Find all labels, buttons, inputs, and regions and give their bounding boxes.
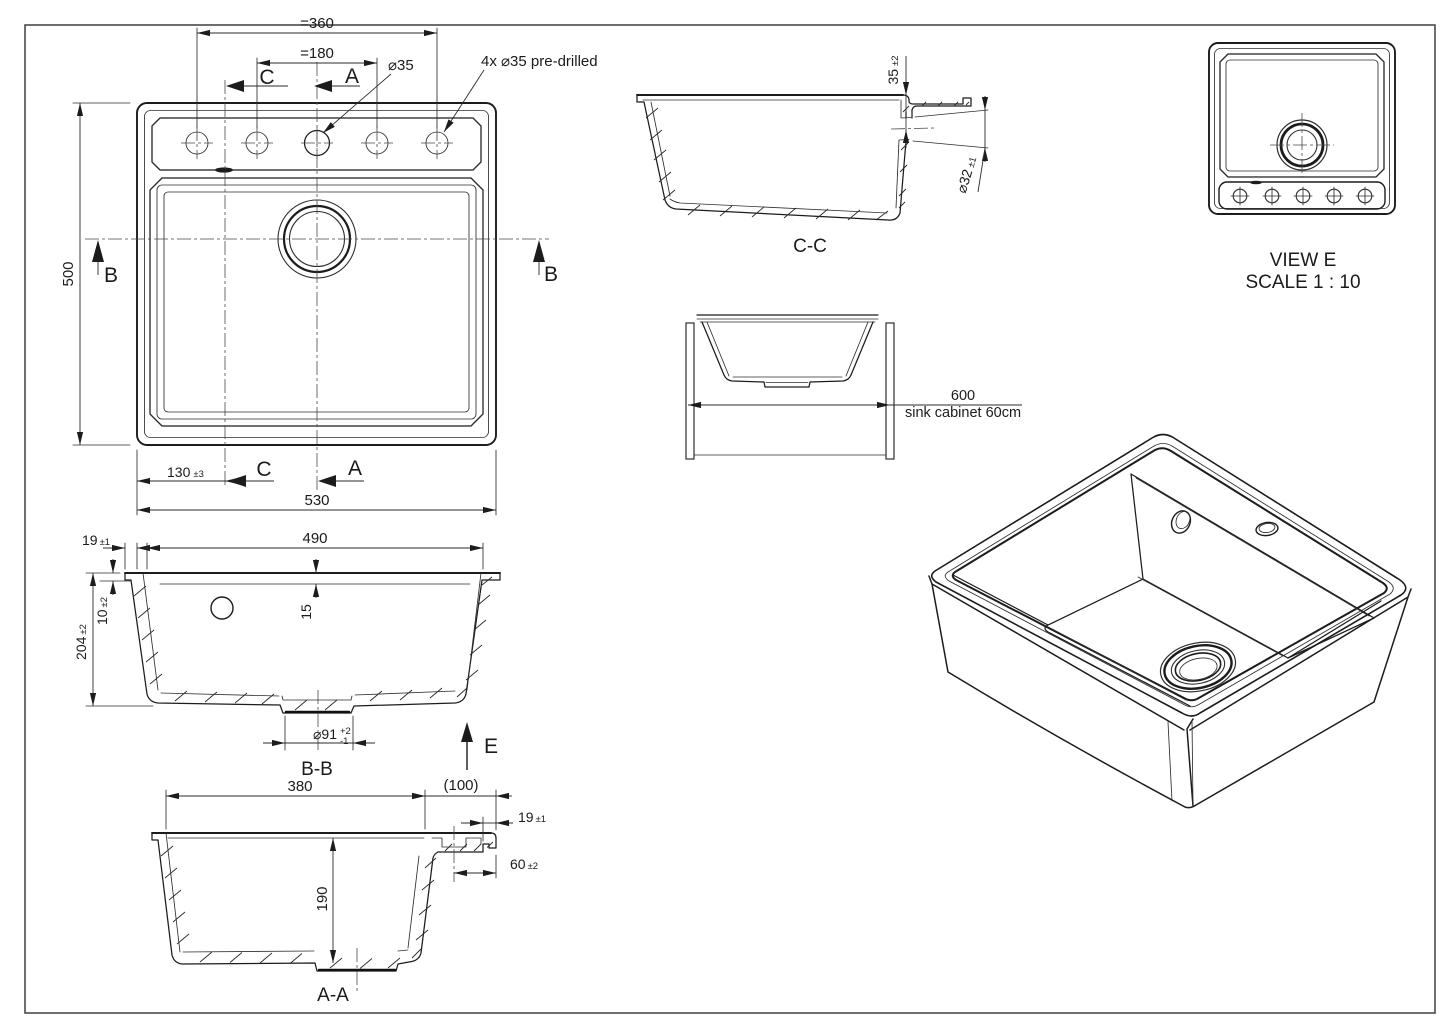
view-e-overflow: [1250, 181, 1262, 184]
section-a-label-bottom: A: [348, 457, 362, 480]
view-e-outer: [1209, 43, 1395, 214]
cabinet-caption: sink cabinet 60cm: [905, 405, 1021, 421]
cabinet-right-panel: [886, 323, 894, 459]
iso-tap-holes: [1168, 508, 1279, 537]
view-e-arrow-label: E: [484, 735, 498, 758]
isometric-view: [929, 435, 1411, 808]
technical-drawing-svg: =360 =180 C A ⌀35 4x ⌀35 pre-drilled 500…: [0, 0, 1445, 1022]
dim-130-value: 130: [167, 464, 191, 480]
view-e-arrow: [461, 722, 473, 742]
section-b-label-left: B: [104, 264, 118, 287]
section-b-label-right: B: [544, 263, 558, 286]
plan-deck-band: [152, 118, 481, 170]
section-b-arrow-left: [92, 240, 104, 262]
section-aa-title: A-A: [317, 985, 349, 1006]
section-aa-view: 380 (100) 19±1 60±2 190 A-A: [152, 777, 546, 1006]
aa-dim-380: 380: [287, 778, 312, 795]
plan-outer-rim: [137, 103, 496, 445]
aa-dim-100: (100): [443, 777, 478, 794]
bb-dim-10: 10±2: [94, 597, 110, 625]
dim-600-label: 600: [951, 388, 975, 404]
plan-view: =360 =180 C A ⌀35 4x ⌀35 pre-drilled 500…: [60, 15, 598, 515]
dia32-label: ⌀32±1: [953, 154, 979, 195]
section-c-arrow-bottom: [228, 475, 246, 487]
cabinet-view: 600 sink cabinet 60cm: [686, 315, 1022, 459]
aa-dim-190: 190: [314, 886, 331, 911]
aa-dim-19: 19±1: [518, 809, 546, 825]
section-c-label-bottom: C: [256, 458, 271, 481]
dia35-label: ⌀35: [388, 57, 414, 74]
bb-dim-19: 19±1: [82, 532, 110, 548]
bb-overflow-hole: [211, 597, 233, 619]
bb-dim-490: 490: [302, 530, 327, 547]
drawing-sheet: =360 =180 C A ⌀35 4x ⌀35 pre-drilled 500…: [0, 0, 1445, 1022]
dim-530-label: 530: [304, 492, 329, 509]
bb-dia-91-minus: -1: [340, 736, 348, 747]
bb-dim-15: 15: [298, 604, 314, 620]
dim-130-tol: ±3: [193, 469, 204, 480]
bb-dia-91: ⌀91: [313, 726, 337, 742]
dim-500-label: 500: [60, 261, 77, 286]
dim-360-label: =360: [300, 15, 334, 32]
section-cc-title: C-C: [793, 236, 827, 257]
section-cc-view: 35±2 ⌀32±1 C-C: [637, 55, 988, 257]
view-e-tap-holes: [1231, 187, 1374, 205]
dim-180-label: =180: [300, 45, 334, 62]
view-e-drain: [1270, 113, 1334, 177]
bb-dim-204: 204±2: [73, 624, 89, 660]
section-bb-title: B-B: [301, 759, 333, 780]
dim-35-label: 35±2: [885, 55, 901, 84]
section-b-arrow-right: [533, 240, 545, 262]
view-e-deck-band: [1219, 182, 1385, 209]
section-bb-view: 19±1 490 10±2 204±2 15 ⌀91 +2 -1 E B-B: [73, 530, 500, 780]
section-c-arrow-top: [226, 80, 244, 92]
view-e-scale: SCALE 1 : 10: [1245, 272, 1360, 293]
view-e: VIEW E SCALE 1 : 10: [1209, 43, 1395, 293]
section-a-arrow-bottom: [318, 475, 336, 487]
plan-bowl-opening: [150, 178, 483, 426]
cabinet-left-panel: [686, 323, 694, 459]
section-c-label-top: C: [259, 66, 274, 89]
plan-overflow-slot: [215, 167, 233, 172]
dim-130-label: 130±3: [167, 464, 204, 480]
predrilled-note: 4x ⌀35 pre-drilled: [481, 53, 598, 70]
iso-rim-outer: [932, 435, 1406, 717]
view-e-title: VIEW E: [1270, 250, 1337, 271]
section-a-label-top: A: [345, 65, 359, 88]
aa-dim-60: 60±2: [510, 856, 538, 872]
